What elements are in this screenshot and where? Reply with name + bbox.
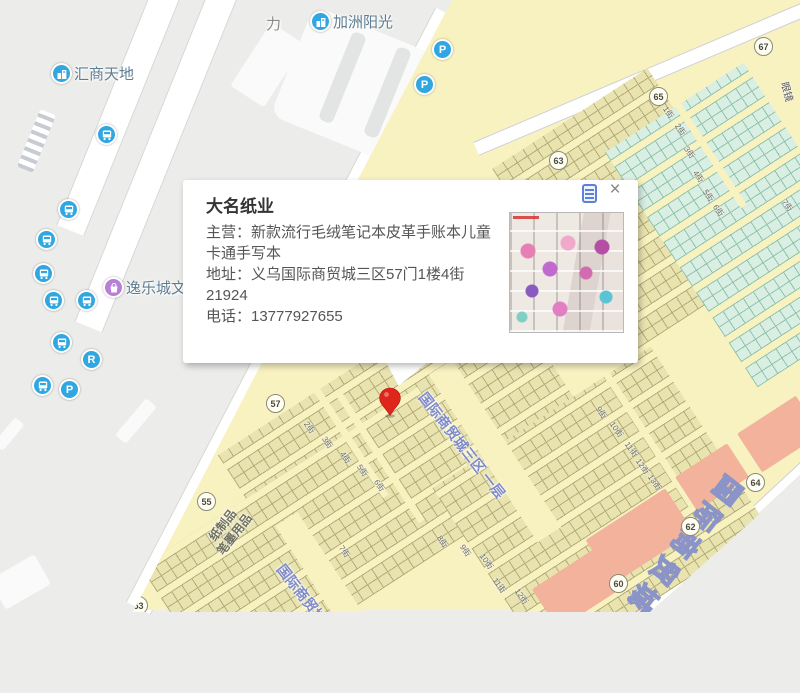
popup-line-address: 地址：义乌国际商贸城三区57门1楼4街21924 bbox=[206, 264, 496, 306]
restroom-icon[interactable]: R bbox=[81, 349, 102, 370]
store-photo[interactable] bbox=[509, 212, 624, 333]
bus-stop-icon[interactable] bbox=[58, 199, 79, 220]
poi-label-text: 逸乐城文 bbox=[126, 277, 186, 298]
gate-67: 67 bbox=[754, 37, 773, 56]
parking-icon[interactable]: P bbox=[414, 74, 435, 95]
building-icon bbox=[51, 63, 72, 84]
bus-stop-icon[interactable] bbox=[36, 229, 57, 250]
gate-57: 57 bbox=[266, 394, 285, 413]
gate-62: 62 bbox=[681, 517, 700, 536]
poi-glasses: 眼镜 bbox=[778, 80, 798, 103]
gate-60: 60 bbox=[609, 574, 628, 593]
shopping-bag-icon bbox=[103, 277, 124, 298]
photo-watermark bbox=[513, 216, 539, 219]
bus-stop-icon[interactable] bbox=[43, 290, 64, 311]
popup-body: 主营：新款流行毛绒笔记本皮革手账本儿童卡通手写本 地址：义乌国际商贸城三区57门… bbox=[206, 222, 496, 327]
building-icon bbox=[310, 11, 331, 32]
parking-icon[interactable]: P bbox=[59, 379, 80, 400]
popup-line-main-business: 主营：新款流行毛绒笔记本皮革手账本儿童卡通手写本 bbox=[206, 222, 496, 264]
poi-label-text: 汇商天地 bbox=[74, 63, 134, 84]
popup-line-phone: 电话：13777927655 bbox=[206, 306, 496, 327]
mobile-phone-icon[interactable] bbox=[582, 184, 597, 203]
map-pin-marker[interactable] bbox=[378, 387, 402, 418]
bus-stop-icon[interactable] bbox=[51, 332, 72, 353]
poi-huishangtiandi[interactable]: 汇商天地 bbox=[51, 63, 134, 84]
escalator-block bbox=[737, 396, 800, 473]
bus-stop-icon[interactable] bbox=[96, 124, 117, 145]
poi-jiazhouyangguang[interactable]: 加洲阳光 bbox=[310, 11, 393, 32]
building bbox=[115, 398, 157, 444]
building bbox=[0, 417, 25, 451]
map-canvas[interactable]: { "map": { "poi": { "huishang": "汇商天地", … bbox=[0, 0, 800, 610]
popup-title: 大名纸业 bbox=[206, 192, 274, 217]
bus-stop-icon[interactable] bbox=[32, 375, 53, 396]
poi-partial-label: 力 bbox=[266, 13, 281, 34]
parking-icon[interactable]: P bbox=[432, 39, 453, 60]
gate-63: 63 bbox=[549, 151, 568, 170]
railway-crossing bbox=[17, 109, 56, 173]
bus-stop-icon[interactable] bbox=[76, 290, 97, 311]
bus-stop-icon[interactable] bbox=[33, 263, 54, 284]
gate-55: 55 bbox=[197, 492, 216, 511]
info-window: 大名纸业 主营：新款流行毛绒笔记本皮革手账本儿童卡通手写本 地址：义乌国际商贸城… bbox=[183, 180, 638, 363]
building bbox=[0, 554, 51, 609]
gate-64: 64 bbox=[746, 473, 765, 492]
gate-65: 65 bbox=[649, 87, 668, 106]
close-icon[interactable]: × bbox=[606, 181, 624, 199]
poi-label-text: 加洲阳光 bbox=[333, 11, 393, 32]
poi-yilecheng[interactable]: 逸乐城文 bbox=[103, 277, 186, 298]
